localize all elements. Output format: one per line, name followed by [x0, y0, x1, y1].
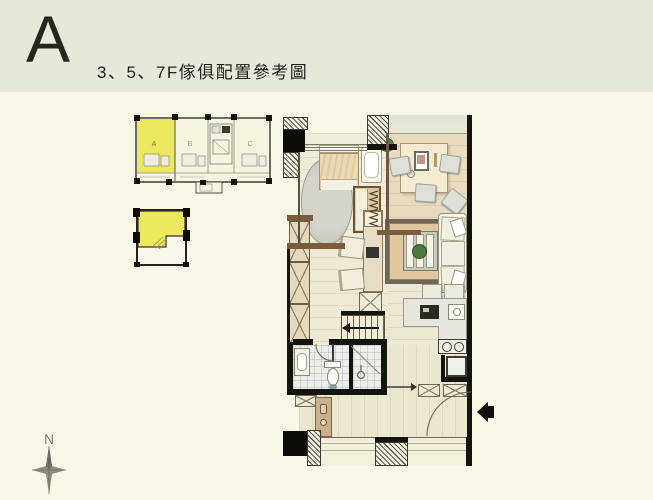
compass-north-label: N [44, 431, 54, 447]
key-plan-label-c: C [247, 141, 252, 148]
shower-head-icon [358, 365, 365, 379]
compass-rose-icon: N [26, 430, 72, 496]
plan-type-letter: A [26, 6, 70, 72]
key-plan-label-b: B [188, 141, 193, 148]
entry-arrow-icon [477, 402, 495, 422]
plan-linework [283, 113, 473, 470]
entry-door-arc [427, 392, 471, 436]
shower-screen [351, 346, 380, 374]
key-plan-label-a: A [152, 141, 157, 148]
page-title: 3、5、7F傢俱配置參考圖 [97, 58, 308, 83]
key-plan: A B C [130, 110, 280, 202]
key-plan-furniture [144, 154, 266, 166]
unit-diagram [133, 206, 191, 270]
hanger-marks [370, 191, 378, 226]
bathroom-door-arc [316, 344, 333, 361]
floor-plan [283, 113, 473, 470]
